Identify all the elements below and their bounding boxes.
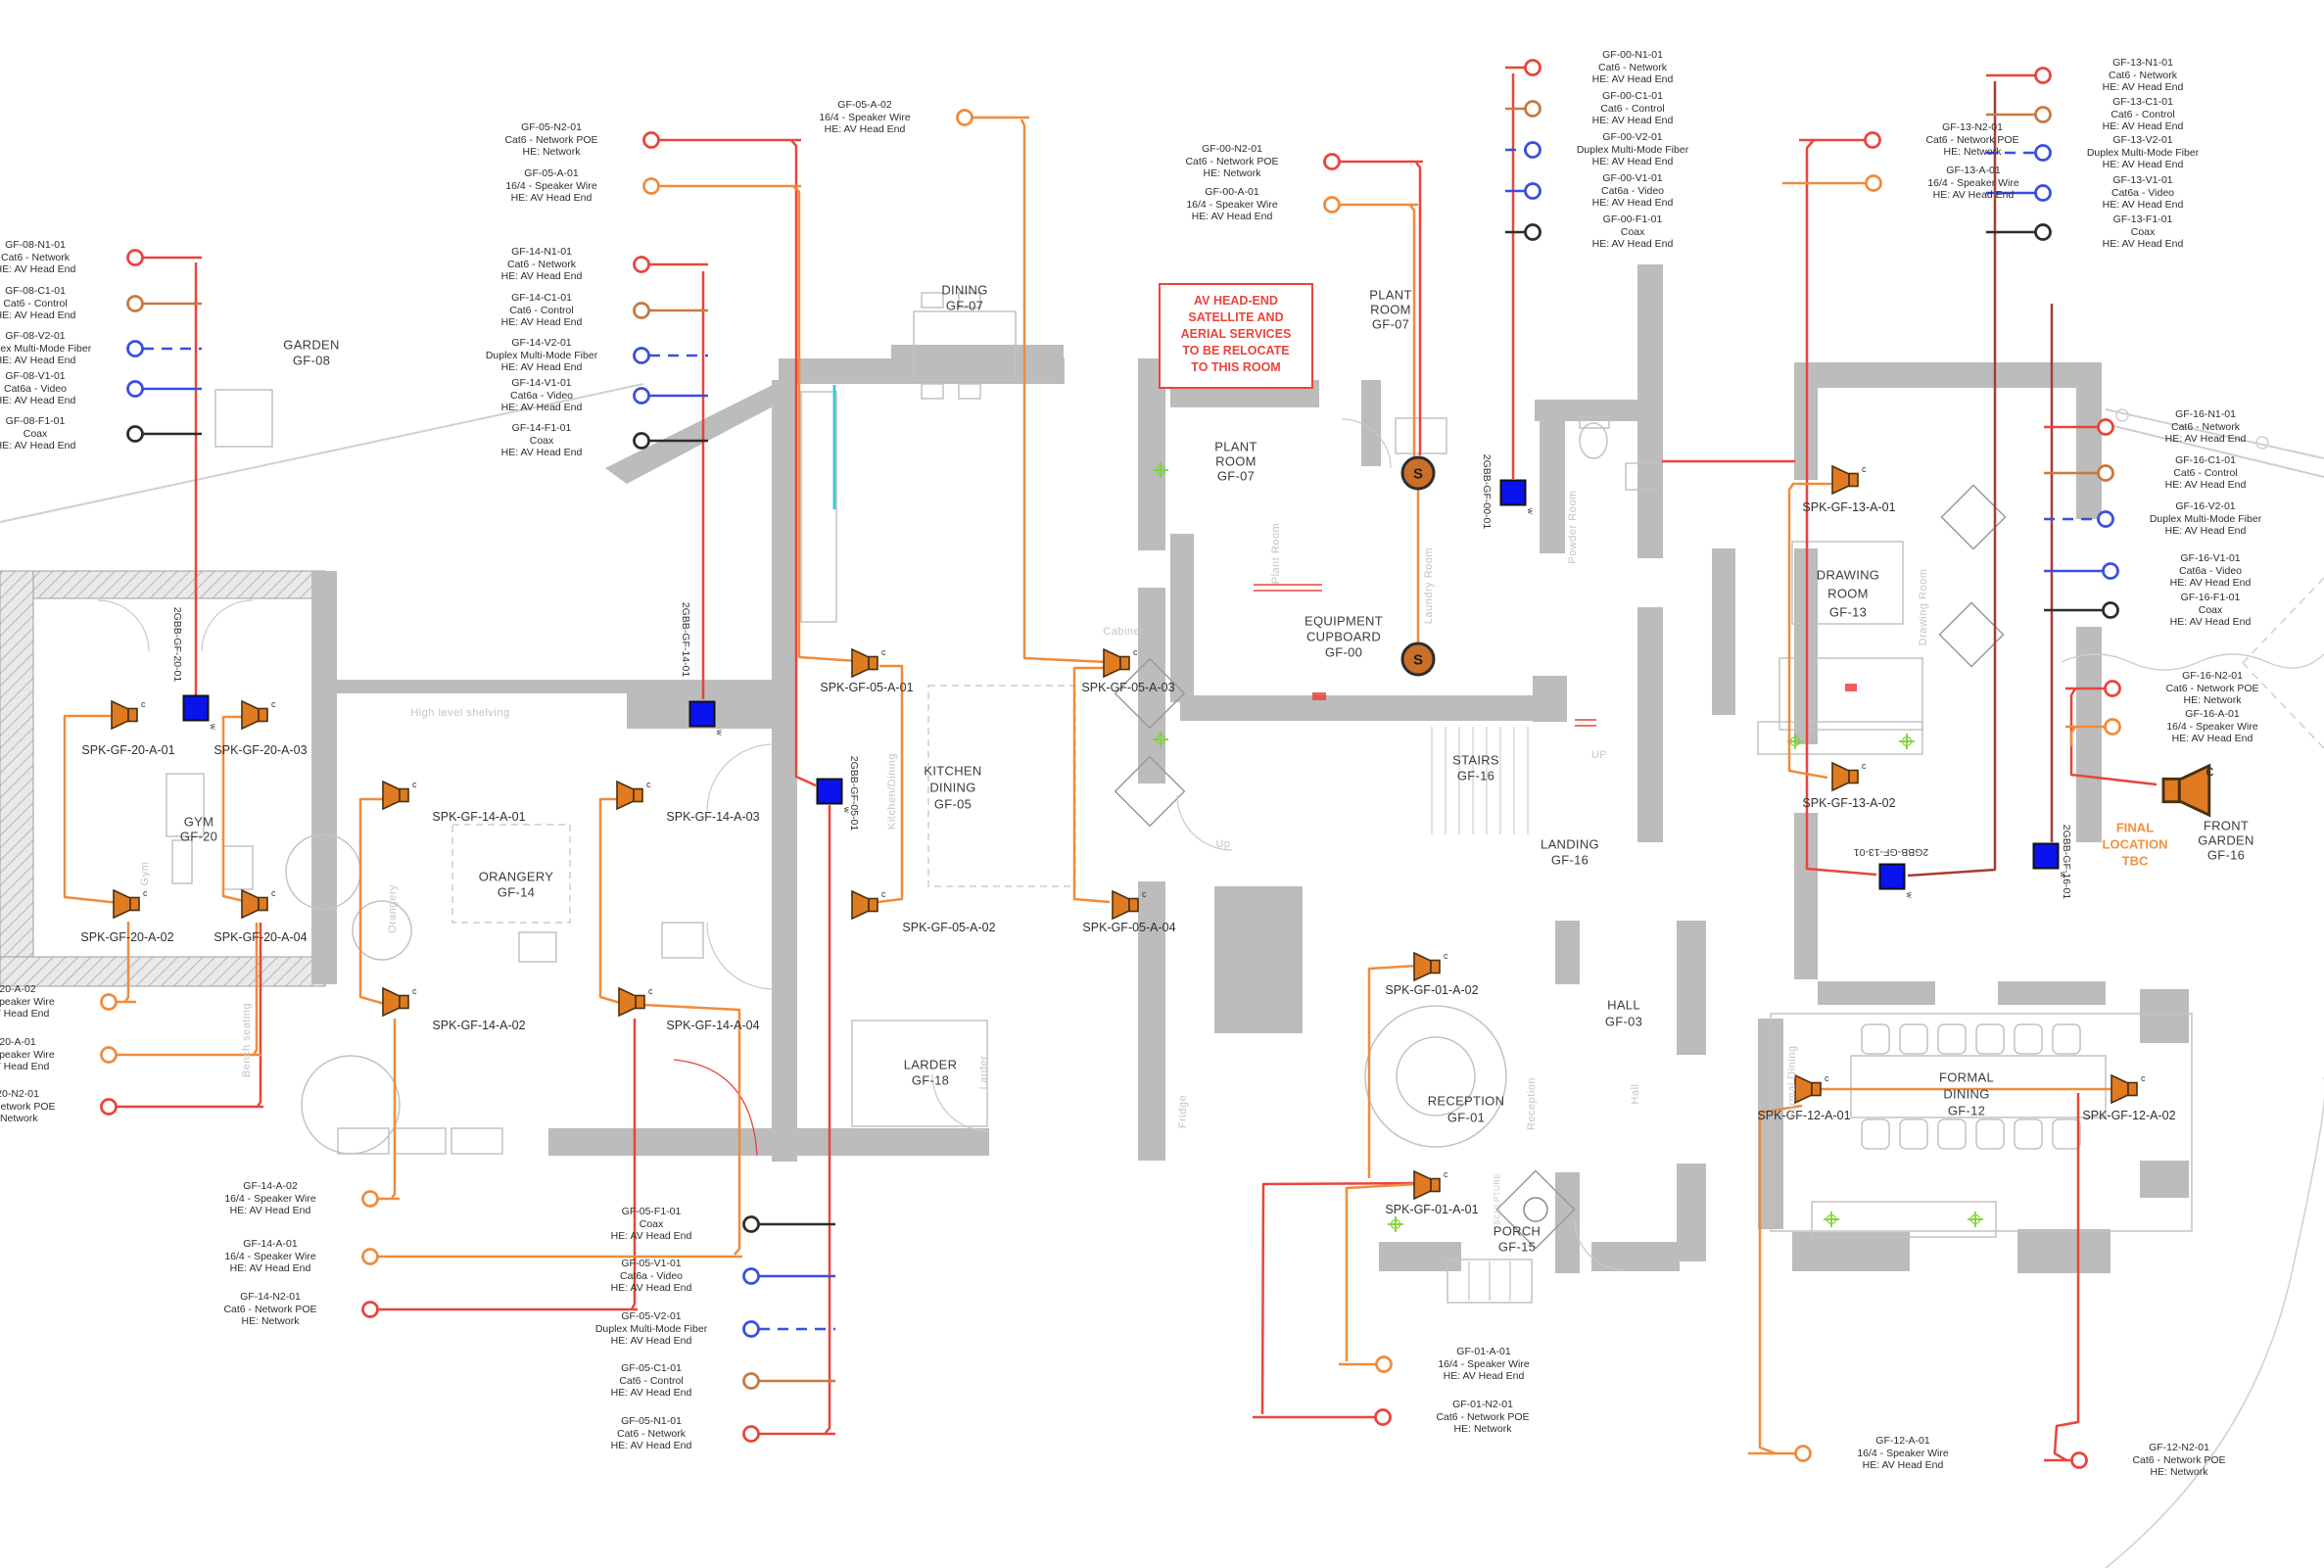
furniture-outline	[922, 293, 943, 308]
speaker-icon: c	[852, 889, 886, 919]
callout-terminal	[2099, 420, 2113, 435]
callout-terminal	[635, 434, 649, 449]
room-label: GF-07	[1217, 469, 1255, 484]
callout-text: GF-05-V1-01	[558, 1258, 744, 1269]
callout-text: GF-00-F1-01	[1540, 214, 1726, 225]
callout-terminal	[2036, 69, 2051, 83]
wall-segment	[1818, 981, 1935, 1005]
callout-text: GF-01-N2-01	[1390, 1399, 1576, 1410]
callout-text: HE: AV Head End	[449, 447, 635, 458]
callout-text: Cat6 - Control	[449, 305, 635, 316]
speaker-icon: c	[1832, 761, 1867, 790]
callout-text: GF-08-V1-01	[0, 370, 128, 382]
architectural-label: Fridge	[1177, 1095, 1189, 1128]
callout-text: GF-00-V2-01	[1540, 131, 1726, 143]
callout-terminal	[128, 382, 143, 397]
speaker-icon: c	[617, 780, 651, 809]
callout-text: HE: Network	[1879, 146, 2065, 158]
room-label: ORANGERY	[479, 870, 554, 884]
callout-text: GF-05-N1-01	[558, 1415, 744, 1427]
speaker-label: SPK-GF-05-A-04	[1082, 921, 1175, 934]
architectural-label: SCULPTURE	[1494, 1173, 1502, 1225]
relocation-note-line: TO BE RELOCATE	[1164, 343, 1307, 359]
wall-segment	[1591, 1242, 1680, 1271]
room-label: FRONT	[2204, 819, 2249, 833]
callout-text: GF-14-A-02	[177, 1180, 363, 1192]
architectural-label: Larder	[978, 1056, 990, 1090]
callout-text: HE: AV Head End	[2050, 120, 2236, 132]
speaker-body	[1129, 899, 1138, 912]
speaker-horn	[114, 890, 130, 918]
furniture-outline	[451, 1128, 502, 1154]
callout-text: HE: AV Head End	[2117, 616, 2303, 628]
speaker-label: SPK-GF-05-A-01	[820, 681, 913, 694]
room-label: EQUIPMENT	[1304, 614, 1383, 629]
callout-text: GF-16-N1-01	[2112, 408, 2299, 420]
architectural-label: High level shelving	[410, 707, 509, 719]
callout-text: HE: AV Head End	[0, 355, 128, 366]
architectural-label: Formal Dining	[1786, 1046, 1798, 1119]
callout-text: HE: AV Head End	[772, 123, 958, 135]
callout-text: 16/4 - Speaker Wire	[458, 180, 644, 192]
wall-segment	[548, 1128, 989, 1156]
callout-text: HE: AV Head End	[1391, 1370, 1577, 1382]
relocation-note-line: SATELLITE AND	[1164, 309, 1307, 326]
wall-segment	[1540, 411, 1565, 553]
room-label: GF-16	[2207, 848, 2245, 863]
callout-text: Duplex Multi-Mode Fiber	[1540, 144, 1726, 156]
door-swing-arc	[202, 600, 253, 651]
keypad-icon	[818, 780, 842, 804]
room-label: GF-07	[1372, 317, 1409, 332]
callout-text: HE: AV Head End	[558, 1335, 744, 1347]
cable-route-orange	[1410, 205, 1414, 458]
cable-route-red	[826, 805, 830, 1433]
furniture-outline	[215, 390, 272, 447]
tv-marker	[1845, 684, 1857, 691]
callout-text: GF-00-N1-01	[1540, 49, 1726, 61]
callout-text: 16/4 - Speaker Wire	[1139, 199, 1325, 211]
wall-segment	[2017, 1229, 2111, 1273]
callout-text: Coax	[2050, 226, 2236, 238]
speaker-icon: c	[112, 699, 146, 729]
callout-text: Cat6a - Video	[1540, 185, 1726, 197]
callout-text: Cat6 - Network POE	[1879, 134, 2065, 146]
room-label: STAIRS	[1452, 753, 1499, 768]
callout-terminal	[1377, 1357, 1392, 1372]
callout-text: GF-05-C1-01	[558, 1362, 744, 1374]
callout-text: GF-13-V2-01	[2050, 134, 2236, 146]
speaker-label: SPK-GF-20-A-01	[81, 743, 174, 757]
callout-text: HE: Network	[1390, 1423, 1576, 1435]
callout-text: GF-05-F1-01	[558, 1206, 744, 1217]
wall-segment	[1637, 264, 1663, 558]
callout-text: HE: AV Head End	[0, 1061, 102, 1072]
callout-text: Cat6 - Control	[558, 1375, 744, 1387]
cable-route-red	[791, 140, 816, 785]
cable-route-orange	[1074, 668, 1110, 902]
callout-text: HE: AV Head End	[558, 1282, 744, 1294]
callout-terminal	[1526, 225, 1541, 240]
wall-hatched-segment	[0, 571, 325, 598]
callout-text: 16/4 - Speaker Wire	[177, 1193, 363, 1205]
callout-text: Coax	[449, 435, 635, 447]
keypad-wall-tag: w	[715, 729, 724, 736]
speaker-icon: c	[242, 699, 276, 729]
speaker-horn	[852, 649, 869, 677]
speaker-icon: c	[2163, 763, 2213, 816]
callout-text: HE: Network	[2119, 694, 2305, 706]
callout-text: GF-05-A-01	[458, 167, 644, 179]
wall-segment	[772, 380, 797, 680]
speaker-icon: c	[242, 888, 276, 918]
callout-text: GF-00-V1-01	[1540, 172, 1726, 184]
speaker-ceiling-tag: c	[648, 986, 653, 996]
door-swing-arc	[707, 744, 774, 811]
callout-text: GF-13-F1-01	[2050, 214, 2236, 225]
callout-text: HE: AV Head End	[1880, 189, 2066, 201]
room-label: GF-12	[1948, 1104, 1985, 1118]
room-label: CUPBOARD	[1306, 630, 1381, 644]
callout-text: 16/4 - Speaker Wire	[177, 1251, 363, 1262]
callout-text: Cat6 - Network POE	[2086, 1454, 2272, 1466]
callout-text: HE: AV Head End	[458, 192, 644, 204]
callout-text: GF-14-C1-01	[449, 292, 635, 304]
callout-terminal	[644, 179, 659, 194]
speaker-label: SPK-GF-12-A-02	[2082, 1109, 2175, 1122]
callout-terminal	[744, 1269, 759, 1284]
architectural-label: Reception	[1526, 1077, 1538, 1130]
room-label: ROOM	[1215, 454, 1257, 469]
speaker-label: SPK-GF-13-A-01	[1802, 500, 1895, 514]
callout-text: Coax	[2117, 604, 2303, 616]
callout-text: GF-05-N2-01	[458, 121, 644, 133]
room-label: GF-20	[180, 830, 217, 844]
callout-text: GF-14-N1-01	[449, 246, 635, 258]
callout-terminal	[635, 389, 649, 404]
dining-chair-outline	[1976, 1119, 2004, 1149]
callout-text: Cat6 - Network POE	[177, 1304, 363, 1315]
speaker-body	[130, 898, 139, 911]
speaker-body	[1812, 1083, 1821, 1096]
speaker-body	[1431, 961, 1440, 974]
callout-terminal	[363, 1303, 378, 1317]
callout-text: HE: AV Head End	[449, 316, 635, 328]
callout-terminal	[2104, 603, 2118, 618]
callout-text: HE: AV Head End	[0, 395, 128, 406]
door-swing-arc	[707, 923, 774, 989]
keypad-wall-tag: w	[1905, 891, 1914, 898]
callout-text: Cat6 - Network	[2050, 70, 2236, 81]
speaker-horn	[1104, 649, 1120, 677]
callout-text: Duplex Multi-Mode Fiber	[2112, 513, 2299, 525]
callout-text: HE: AV Head End	[449, 270, 635, 282]
wall-segment	[1533, 676, 1567, 722]
speaker-ceiling-tag: c	[1862, 761, 1867, 771]
speaker-horn	[242, 890, 259, 918]
dining-chair-outline	[1862, 1024, 1889, 1054]
speaker-ceiling-tag: c	[1133, 647, 1138, 657]
furniture-outline	[1771, 1014, 2192, 1231]
dining-chair-outline	[1938, 1119, 1966, 1149]
room-label: KITCHEN	[924, 764, 981, 779]
speaker-label: SPK-GF-01-A-01	[1385, 1203, 1478, 1216]
room-label: GF-08	[293, 354, 330, 368]
speaker-label: SPK-GF-14-A-03	[666, 810, 759, 824]
keypad-label: 2GBB-GF-00-01	[1481, 454, 1493, 529]
speaker-ceiling-tag: c	[1142, 889, 1147, 899]
furniture-outline	[172, 840, 192, 883]
callout-text: HE: Network	[0, 1113, 102, 1124]
callout-text: HE: AV Head End	[2112, 525, 2299, 537]
speaker-horn	[1414, 1171, 1431, 1199]
wall-segment	[1677, 1164, 1706, 1261]
callout-terminal	[2106, 682, 2120, 696]
callout-text: HE: AV Head End	[177, 1262, 363, 1274]
callout-text: Cat6 - Network POE	[1139, 156, 1325, 167]
callout-text: GF-08-N1-01	[0, 239, 128, 251]
speaker-body	[400, 789, 408, 802]
speaker-body	[1849, 771, 1858, 784]
speaker-body	[2128, 1083, 2137, 1096]
callout-text: Cat6 - Network	[558, 1428, 744, 1440]
speaker-body	[869, 657, 877, 670]
speaker-horn	[383, 988, 400, 1016]
callout-terminal	[1526, 61, 1541, 75]
speaker-icon: c	[114, 888, 148, 918]
room-label: DINING	[929, 781, 975, 795]
callout-text: GF-13-N2-01	[1879, 121, 2065, 133]
wall-segment	[1677, 921, 1706, 1055]
furniture-circle	[302, 1056, 400, 1154]
wall-segment	[772, 680, 797, 1162]
callout-text: GF-20-A-01	[0, 1036, 102, 1048]
callout-text: GF-20-A-02	[0, 983, 102, 995]
callout-terminal	[102, 1048, 117, 1063]
callout-text: HE: AV Head End	[1540, 238, 1726, 250]
keypad-wall-tag: w	[209, 723, 217, 730]
callout-terminal	[102, 995, 117, 1010]
cable-route-orange	[392, 1019, 395, 1199]
callout-text: HE: AV Head End	[2117, 577, 2303, 589]
relocation-note-line: AV HEAD-END	[1164, 293, 1307, 309]
speaker-ceiling-tag: c	[2141, 1073, 2146, 1083]
furniture-outline	[801, 392, 836, 622]
speaker-ceiling-tag: c	[2205, 763, 2213, 781]
wall-segment	[311, 571, 337, 984]
callout-text: GF-16-F1-01	[2117, 592, 2303, 603]
callout-terminal	[363, 1250, 378, 1264]
furniture-outline	[223, 846, 253, 889]
callout-terminal	[1867, 176, 1881, 191]
wall-segment	[337, 680, 631, 693]
speaker-ceiling-tag: c	[881, 647, 886, 657]
room-label: PLANT	[1369, 288, 1411, 303]
room-label: LANDING	[1541, 837, 1599, 852]
callout-terminal	[744, 1427, 759, 1442]
callout-text: Duplex Multi-Mode Fiber	[449, 350, 635, 361]
callout-text: HE: Network	[177, 1315, 363, 1327]
callout-terminal	[2036, 108, 2051, 122]
speaker-body	[400, 996, 408, 1009]
callout-text: GF-14-V2-01	[449, 337, 635, 349]
callout-text: Cat6 - Network POE	[1390, 1411, 1576, 1423]
wall-segment	[1214, 886, 1303, 1033]
callout-text: GF-00-A-01	[1139, 186, 1325, 198]
architectural-label: Orangery	[387, 884, 399, 933]
sculpture-base	[1524, 1198, 1547, 1221]
callout-terminal	[128, 342, 143, 356]
speaker-body	[636, 996, 644, 1009]
callout-text: GF-13-N1-01	[2050, 57, 2236, 69]
callout-terminal	[1376, 1410, 1391, 1425]
final-location-note: FINAL	[2116, 820, 2154, 836]
wall-hatched-segment	[0, 571, 33, 986]
callout-text: Cat6 - Control	[1540, 103, 1726, 115]
speaker-horn	[383, 782, 400, 809]
callout-text: HE: AV Head End	[558, 1440, 744, 1451]
room-label: GF-15	[1498, 1240, 1536, 1255]
callout-terminal	[635, 258, 649, 272]
callout-terminal	[644, 133, 659, 148]
callout-text: GF-08-C1-01	[0, 285, 128, 297]
callout-terminal	[2106, 720, 2120, 735]
callout-text: 16/4 - Speaker Wire	[2119, 721, 2305, 733]
callout-text: GF-16-A-01	[2119, 708, 2305, 720]
wall-segment	[1555, 1172, 1580, 1273]
keypad-icon	[1880, 865, 1905, 889]
speaker-label: SPK-GF-05-A-02	[902, 921, 995, 934]
callout-text: HE: AV Head End	[1139, 211, 1325, 222]
callout-terminal	[1526, 102, 1541, 117]
callout-text: HE: Network	[458, 146, 644, 158]
wall-hatched-segment	[0, 957, 325, 986]
speaker-icon: c	[2111, 1073, 2146, 1103]
wall-segment	[1170, 534, 1194, 702]
wall-segment	[891, 345, 1064, 360]
furniture-outline	[338, 1128, 389, 1154]
architectural-label: Hall	[1630, 1084, 1641, 1105]
callout-text: HE: AV Head End	[558, 1387, 744, 1399]
callout-text: HE: AV Head End	[177, 1205, 363, 1216]
room-label: GARDEN	[2198, 833, 2253, 848]
callout-text: GF-00-N2-01	[1139, 143, 1325, 155]
architectural-label: Powder Room	[1567, 490, 1579, 563]
wall-segment	[1555, 921, 1580, 984]
callout-text: HE: AV Head End	[558, 1230, 744, 1242]
callout-text: Duplex Multi-Mode Fiber	[558, 1323, 744, 1335]
speaker-icon: c	[383, 986, 417, 1016]
room-label: GF-07	[946, 299, 983, 313]
keypad-label: 2GBB-GF-13-01	[1854, 846, 1928, 858]
callout-terminal	[744, 1217, 759, 1232]
room-label: PLANT	[1214, 440, 1257, 454]
callout-text: HE: AV Head End	[2119, 733, 2305, 744]
room-label: GF-14	[498, 885, 535, 900]
callout-text: HE: AV Head End	[0, 440, 128, 451]
room-label: DINING	[1943, 1087, 1989, 1102]
speaker-icon: c	[1414, 1169, 1448, 1199]
room-label: LARDER	[904, 1058, 958, 1072]
speaker-horn	[619, 988, 636, 1016]
callout-text: GF-20-N2-01	[0, 1088, 102, 1100]
speaker-ceiling-tag: c	[271, 888, 276, 898]
dining-chair-outline	[1938, 1024, 1966, 1054]
callout-terminal	[1866, 133, 1880, 148]
wall-segment	[1379, 1242, 1461, 1271]
speaker-label: SPK-GF-12-A-01	[1757, 1109, 1850, 1122]
callout-text: GF-14-F1-01	[449, 422, 635, 434]
callout-text: Cat6 - Control	[2112, 467, 2299, 479]
callout-text: GF-13-A-01	[1880, 165, 2066, 176]
callout-text: GF-16-V2-01	[2112, 500, 2299, 512]
room-label: DRAWING	[1817, 568, 1879, 583]
speaker-ceiling-tag: c	[412, 780, 417, 789]
architectural-label: UP	[1591, 749, 1607, 761]
keypad-label: 2GBB-GF-14-01	[680, 602, 691, 677]
callout-terminal	[363, 1192, 378, 1207]
callout-text: HE: AV Head End	[2112, 433, 2299, 445]
callout-text: HE: AV Head End	[0, 263, 128, 275]
callout-text: HE: AV Head End	[1810, 1459, 1996, 1471]
floor-plan-drawing: cccccccccccccccccccwwwwwwSS	[0, 0, 2324, 1568]
callout-terminal	[1325, 198, 1340, 213]
furniture-outline	[1758, 722, 1922, 754]
callout-text: HE: AV Head End	[1540, 156, 1726, 167]
keypad-label: 2GBB-GF-20-01	[171, 607, 183, 682]
architectural-label: Drawing Room	[1918, 569, 1929, 646]
callout-terminal	[2036, 225, 2051, 240]
callout-text: 16/4 - Speaker Wire	[1880, 177, 2066, 189]
room-label: GF-18	[912, 1073, 949, 1088]
callout-text: GF-05-A-02	[772, 99, 958, 111]
callout-text: Cat6 - Network	[449, 259, 635, 270]
speaker-body	[1431, 1179, 1440, 1192]
callout-text: 16/4 - Speaker Wire	[772, 112, 958, 123]
room-label: FORMAL	[1939, 1070, 1994, 1085]
wall-segment	[1712, 548, 1735, 715]
speaker-label: SPK-GF-13-A-02	[1802, 796, 1895, 810]
wall-segment	[2140, 989, 2189, 1043]
room-label: GF-03	[1605, 1015, 1642, 1029]
speaker-ceiling-tag: c	[1444, 1169, 1448, 1179]
room-label: DINING	[941, 283, 987, 298]
callout-text: GF-01-A-01	[1391, 1346, 1577, 1357]
speaker-ceiling-tag: c	[1825, 1073, 1829, 1083]
door-swing-arc	[98, 600, 149, 651]
speaker-horn	[852, 891, 869, 919]
keypad-icon	[184, 696, 209, 721]
relocation-note-box: AV HEAD-ENDSATELLITE ANDAERIAL SERVICEST…	[1159, 283, 1313, 389]
speaker-ceiling-tag: c	[141, 699, 146, 709]
wall-segment	[1998, 981, 2106, 1005]
speaker-icon: c	[1832, 464, 1867, 494]
room-label: GF-16	[1457, 769, 1494, 784]
callout-terminal	[1325, 155, 1340, 169]
callout-terminal	[635, 304, 649, 318]
speaker-icon: c	[383, 780, 417, 809]
callout-terminal	[2072, 1453, 2087, 1468]
furniture-outline	[519, 932, 556, 962]
speaker-label: SPK-GF-14-A-01	[432, 810, 525, 824]
speaker-body	[2163, 779, 2179, 801]
architectural-label: Bench seating	[241, 1003, 253, 1077]
callout-text: Coax	[0, 428, 128, 440]
room-label: GYM	[184, 815, 214, 830]
hedge-line	[2106, 1077, 2324, 1568]
callout-text: HE: AV Head End	[1540, 73, 1726, 85]
dining-chair-outline	[1900, 1119, 1927, 1149]
